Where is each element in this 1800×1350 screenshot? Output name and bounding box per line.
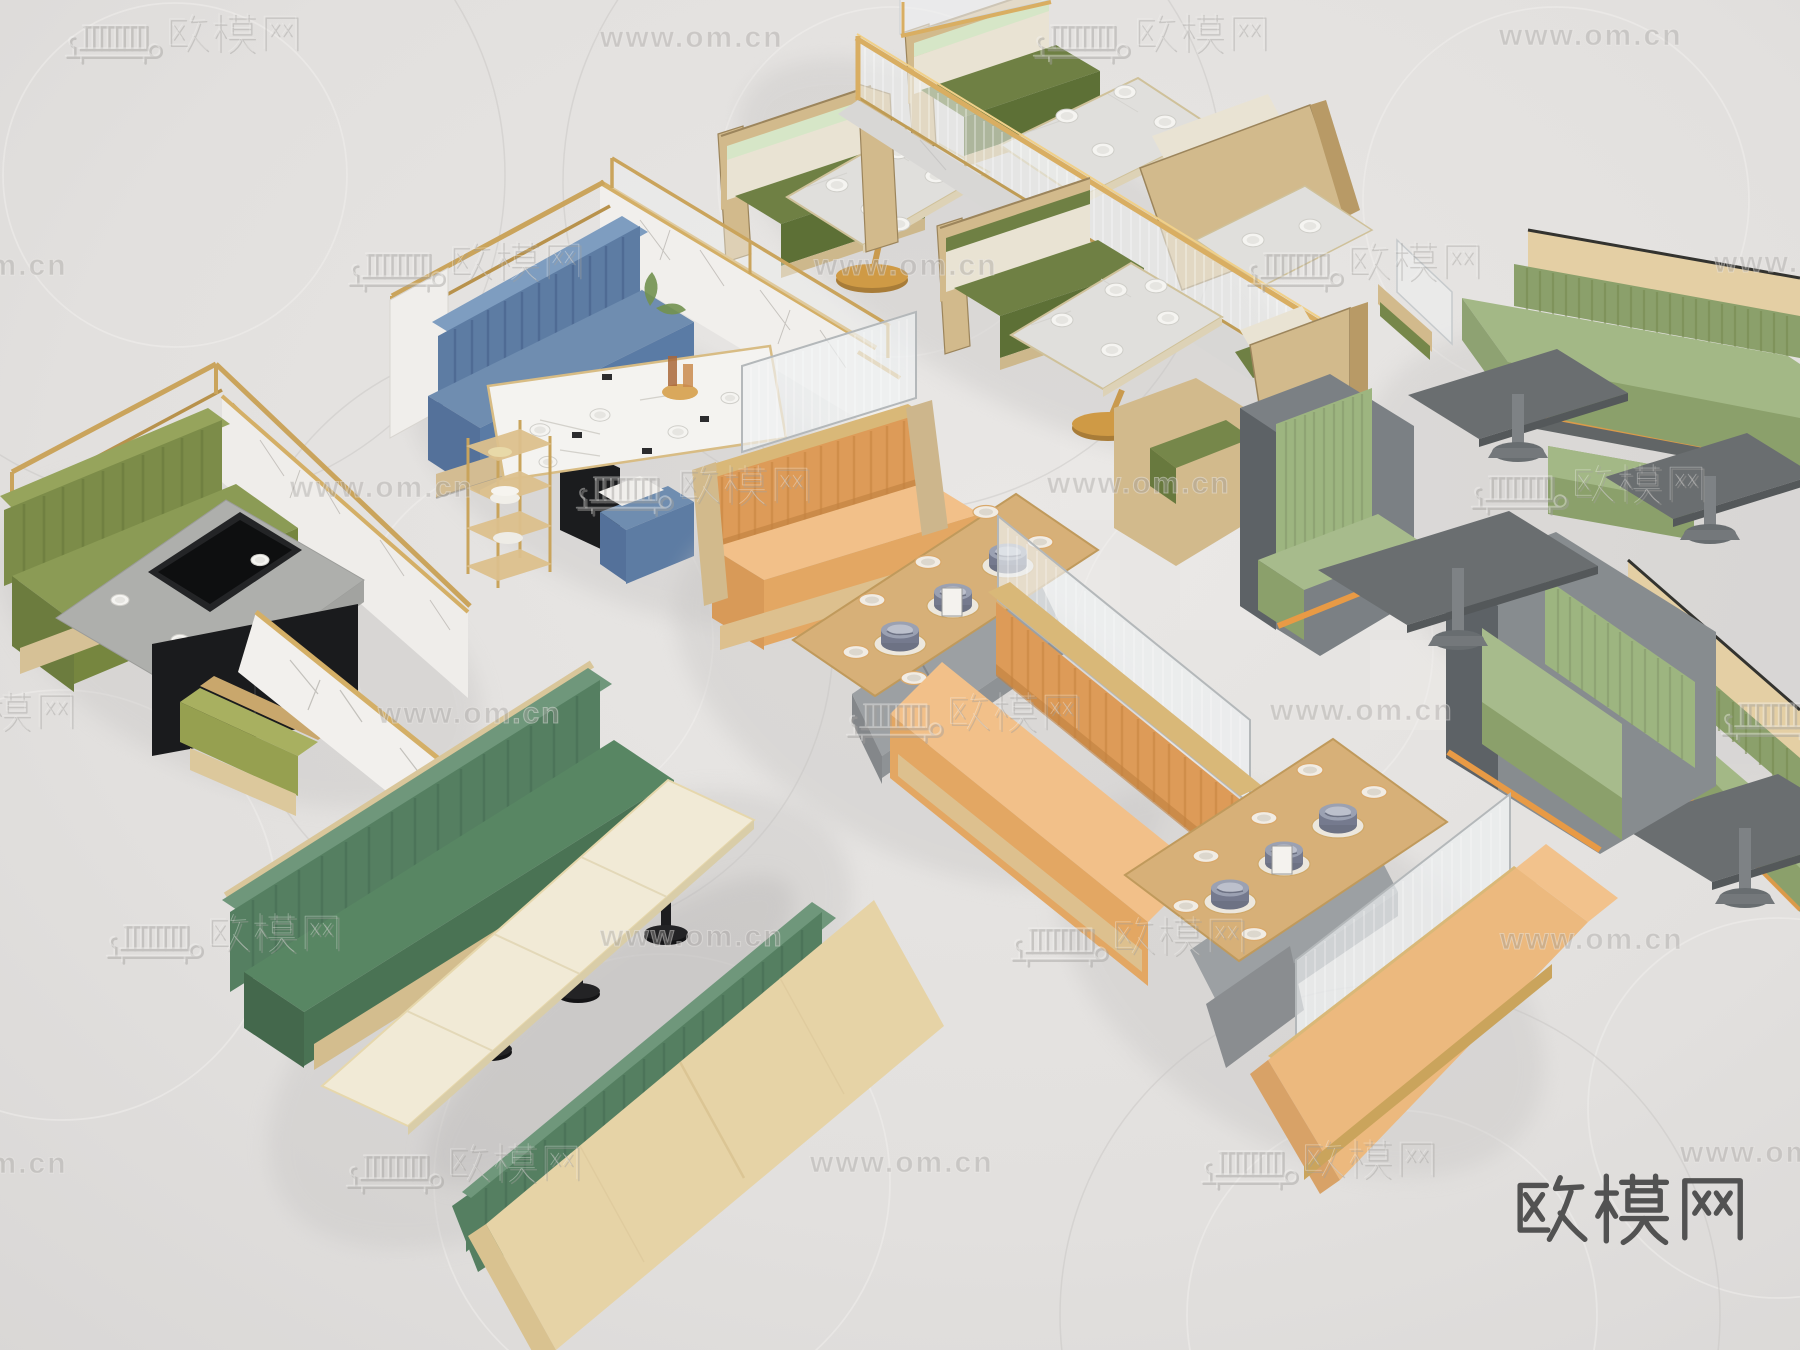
svg-text:www.om.cn: www.om.cn	[0, 1147, 68, 1180]
svg-text:www.om.cn: www.om.cn	[809, 1146, 994, 1179]
svg-text:www.om.cn: www.om.cn	[599, 21, 784, 54]
svg-text:www.om.cn: www.om.cn	[1679, 1136, 1800, 1169]
svg-text:www.om.cn: www.om.cn	[0, 249, 68, 282]
svg-text:www.om.cn: www.om.cn	[1269, 694, 1454, 727]
svg-text:www.om.cn: www.om.cn	[1498, 19, 1683, 52]
svg-text:www.om.cn: www.om.cn	[1046, 467, 1231, 500]
svg-text:www.om.cn: www.om.cn	[599, 920, 784, 953]
svg-text:www.om.cn: www.om.cn	[377, 697, 562, 730]
svg-text:www.om.cn: www.om.cn	[813, 249, 998, 282]
svg-text:www.om.cn: www.om.cn	[1499, 923, 1684, 956]
svg-text:www.om.cn: www.om.cn	[1713, 246, 1800, 279]
svg-text:www.om.cn: www.om.cn	[289, 471, 474, 504]
